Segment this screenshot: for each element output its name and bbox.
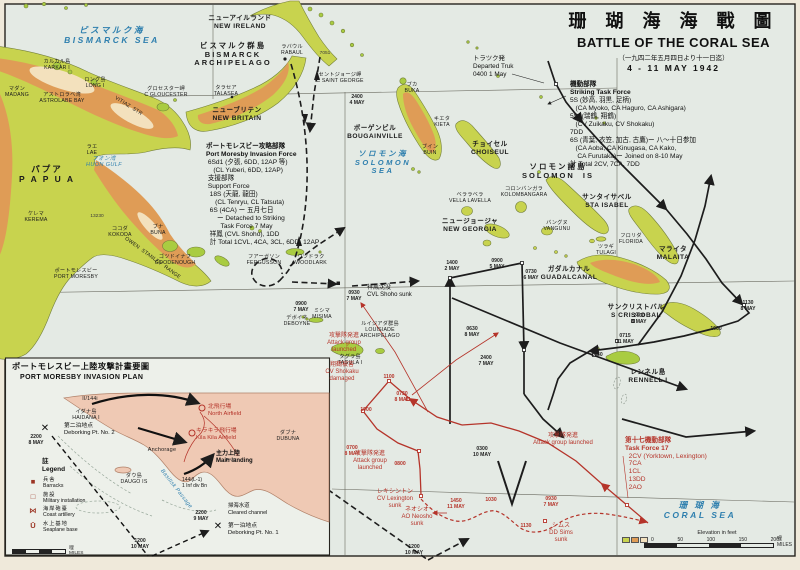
time-label: 030010 MAY: [473, 447, 491, 458]
deboarding-point-2-mark: ✕: [41, 423, 49, 435]
map-label: ニューブリテンNEW BRITAIN: [212, 107, 261, 122]
barracks-icon: ■: [28, 478, 38, 486]
map-label: フアーガソンFERGUSSON: [247, 255, 282, 267]
time-label: 07308 MAY: [394, 392, 409, 403]
map-label: ベララベラVELLA LAVELLA: [449, 193, 491, 205]
map-label: キエタKIETA: [434, 117, 450, 129]
distance-bar: [644, 543, 774, 548]
deboarding-point-1-mark: ✕: [214, 521, 222, 533]
map-label: ラエLAE: [87, 145, 98, 157]
solomon-sea-label: ソロモン海SOLOMONSEA: [355, 150, 411, 176]
map-label: フロリダFLORIDA: [619, 234, 643, 246]
shokaku-damaged-note: 翔鶴被害CV Shokakudamaged: [325, 362, 358, 383]
map-label: ポートモレスビーPORT MORESBY: [54, 269, 98, 281]
inset-legend: 註 Legend ■兵舎Barracks□施設Military installa…: [28, 458, 146, 537]
map-label: チョイセルCHOISEUL: [471, 141, 509, 156]
map-label: イダナ島HAIDANA I: [72, 410, 99, 422]
map-label: II/144i: [82, 397, 98, 403]
map-label: ブカBUKA: [405, 83, 420, 95]
time-label: 09307 MAY: [543, 497, 558, 508]
map-label: ブインBUIN: [422, 145, 438, 157]
map-label: ゴツドイナフGOODENOUGH: [155, 255, 196, 267]
inset-scale-bar: 哩 MILES: [12, 546, 83, 556]
military-installation-icon: □: [28, 493, 38, 501]
port-moresby-invasion-force-note: ポートモレスビー攻略部隊Port Moresby Invasion Force …: [206, 143, 319, 247]
map-label: バングヌVANGUNU: [544, 221, 571, 233]
seaplane-base-icon: Ū: [28, 522, 38, 530]
task-force-17-note: 第十七機動部隊Task Force 17 2CV (Yorktown, Lexi…: [625, 437, 707, 491]
inset-title-jp: ポートモレスビー上陸攻撃計畫要圖: [12, 362, 149, 371]
time-label: 1900: [360, 408, 371, 414]
coral-sea-battle-map: ビスマルク海BISMARCK SEAソロモン海SOLOMONSEA珊 瑚 海CO…: [0, 0, 800, 570]
deboarding-point-1-label: 第一泊地点Deborking Pt. No. 1: [228, 523, 279, 537]
map-label: セントジョージ岬C SAINT GEORGE: [316, 73, 363, 85]
map-label: パプアP A P U A: [19, 165, 75, 185]
time-label: 11308 MAY: [740, 301, 755, 312]
sims-sunk-note: シムスDD Simssunk: [549, 523, 573, 544]
map-label: ダブナDUBUNA: [276, 431, 299, 443]
deboarding-point-2-label: 第二泊地点Deborking Pt. No. 2: [64, 423, 115, 437]
coast-artillery-icon: ⋈: [28, 507, 38, 515]
legend-title: 註 Legend: [42, 458, 146, 474]
elevation-caption: Elevation in feet: [642, 530, 792, 536]
attack-group-launched-note: 攻撃隊発進Attack grouplaunched: [327, 333, 361, 354]
map-label: ニュージョージャNEW GEORGIA: [442, 218, 498, 233]
time-label: 0800: [394, 462, 405, 468]
scale-ticks: 050100150200: [651, 537, 779, 543]
map-scale-bar: Elevation in feet 050100150200 哩MILES: [622, 530, 792, 548]
time-label: 1130: [520, 524, 531, 530]
hypsometric-tints: [622, 537, 648, 543]
map-label: ブナBUNA: [150, 225, 165, 237]
inset-title-en: PORT MORESBY INVASION PLAN: [20, 374, 143, 382]
time-label: 145011 MAY: [447, 499, 465, 510]
huon-gulf-label: フオン湾HUON GULF: [86, 156, 122, 169]
striking-task-force-note: 機動部隊Striking Task Force5S (妙高, 羽黒, 足柄) (…: [570, 81, 696, 169]
map-label: PARI: [226, 458, 237, 464]
time-label: 09307 MAY: [346, 291, 361, 302]
scale-unit: 哩MILES: [777, 537, 792, 548]
map-label: ガダルカナルGUADALCANAL: [541, 266, 598, 281]
time-label: 120010 MAY: [131, 539, 149, 550]
map-label: ミシマMISIMA: [312, 309, 332, 321]
map-label: コロンバンガラKOLOMBANGARA: [501, 187, 548, 199]
map-label: サンタイサベルSTA ISABEL: [582, 194, 632, 209]
time-label: 1600: [710, 327, 721, 333]
map-label: ウツドラクWOODLARK: [295, 255, 327, 267]
map-label: VITIAZ STR: [113, 96, 143, 118]
map-label: 144i(L-1)1 Inf div Bn: [182, 477, 207, 489]
map-label: マライタMALAITA: [657, 246, 690, 261]
map-label: レンネル島RENNELL I: [628, 369, 667, 384]
map-label: 13230: [90, 214, 103, 220]
page-title: 珊 瑚 海 海 戰 圖: [552, 7, 795, 33]
map-label: カルカル島KARKAR I: [44, 60, 71, 72]
map-label: ラバウルRABAUL: [281, 45, 303, 57]
map-title-block: 珊 瑚 海 海 戰 圖 BATTLE OF THE CORAL SEA （一九四…: [552, 7, 795, 73]
map-label: アストロラベ湾ASTROLABE BAY: [39, 93, 84, 105]
legend-item: ■兵舎Barracks: [28, 478, 146, 490]
time-label: 09007 MAY: [293, 302, 308, 313]
legend-item: □施設Military installation: [28, 493, 146, 505]
map-label: ビスマルク群島BISMARCKARCHIPELAGO: [194, 42, 271, 68]
time-label: 06308 MAY: [464, 327, 479, 338]
date-range-en: 4 - 11 MAY 1942: [552, 63, 795, 73]
legend-item: ⋈海岸砲臺Coast artillery: [28, 507, 146, 519]
coral-sea-label: 珊 瑚 海CORAL SEA: [664, 501, 736, 521]
time-label: 24008 MAY: [631, 314, 646, 325]
north-airfield-label: 北飛行場North Airfield: [208, 404, 241, 418]
map-label: ツラギTULAGI: [596, 245, 616, 257]
cleared-channel-label: 掃海水道Cleared channel: [228, 503, 267, 516]
time-label: 07008 MAY: [344, 446, 359, 457]
time-label: 22009 MAY: [193, 511, 208, 522]
map-label: ルイジアダ群島LOUISIADEARCHIPELAGO: [360, 322, 400, 340]
neosho-sunk-note: ネオシオAO Neoshosunk: [401, 507, 432, 528]
time-label: 09005 MAY: [489, 259, 504, 270]
shoho-sunk-note: 祥鳳沈没CVL Shoho sunk: [367, 285, 412, 300]
time-label: 071511 MAY: [616, 334, 634, 345]
map-label: タラセアTALASEA: [214, 86, 238, 98]
map-label: ロング島LONG I: [84, 78, 106, 90]
kila-kila-airfield-label: キラキラ飛行場Kila Kila Airfield: [196, 428, 237, 442]
departed-truk-note: トラツク発Departed Truk0400 1 May: [473, 55, 514, 78]
map-label: ケレマKEREMA: [24, 212, 47, 224]
time-label: 120010 MAY: [405, 545, 423, 556]
map-label: デボイネDEBOYNE: [284, 316, 311, 328]
time-label: 24004 MAY: [349, 95, 364, 106]
attack-group-launched-note: 攻撃隊発進Attack group launched: [533, 433, 593, 447]
map-label: ニューアイルランドNEW IRELAND: [208, 15, 271, 30]
map-label: Anchorage: [148, 447, 176, 453]
time-label: 07306 MAY: [523, 270, 538, 281]
time-label: 22008 MAY: [28, 435, 43, 446]
legend-item: Ū水上基地Seaplane base: [28, 522, 146, 534]
time-label: 24007 MAY: [478, 356, 493, 367]
time-label: 1030: [485, 498, 496, 504]
map-label: マダンMADANG: [5, 87, 29, 99]
map-label: 7051: [320, 51, 331, 57]
time-label: 1630: [591, 353, 602, 359]
map-label: グロセスター岬C GLOUCESTER: [144, 87, 187, 99]
time-label: 14002 MAY: [444, 261, 459, 272]
map-label: ボーゲンビルBOUGAINVILLE: [347, 125, 403, 140]
page-title-en: BATTLE OF THE CORAL SEA: [552, 35, 795, 50]
date-range-jp: （一九四二年五月四日より十一日迄）: [552, 52, 795, 62]
bismarck-sea-label: ビスマルク海BISMARCK SEA: [64, 26, 160, 46]
time-label: 1100: [383, 375, 394, 381]
